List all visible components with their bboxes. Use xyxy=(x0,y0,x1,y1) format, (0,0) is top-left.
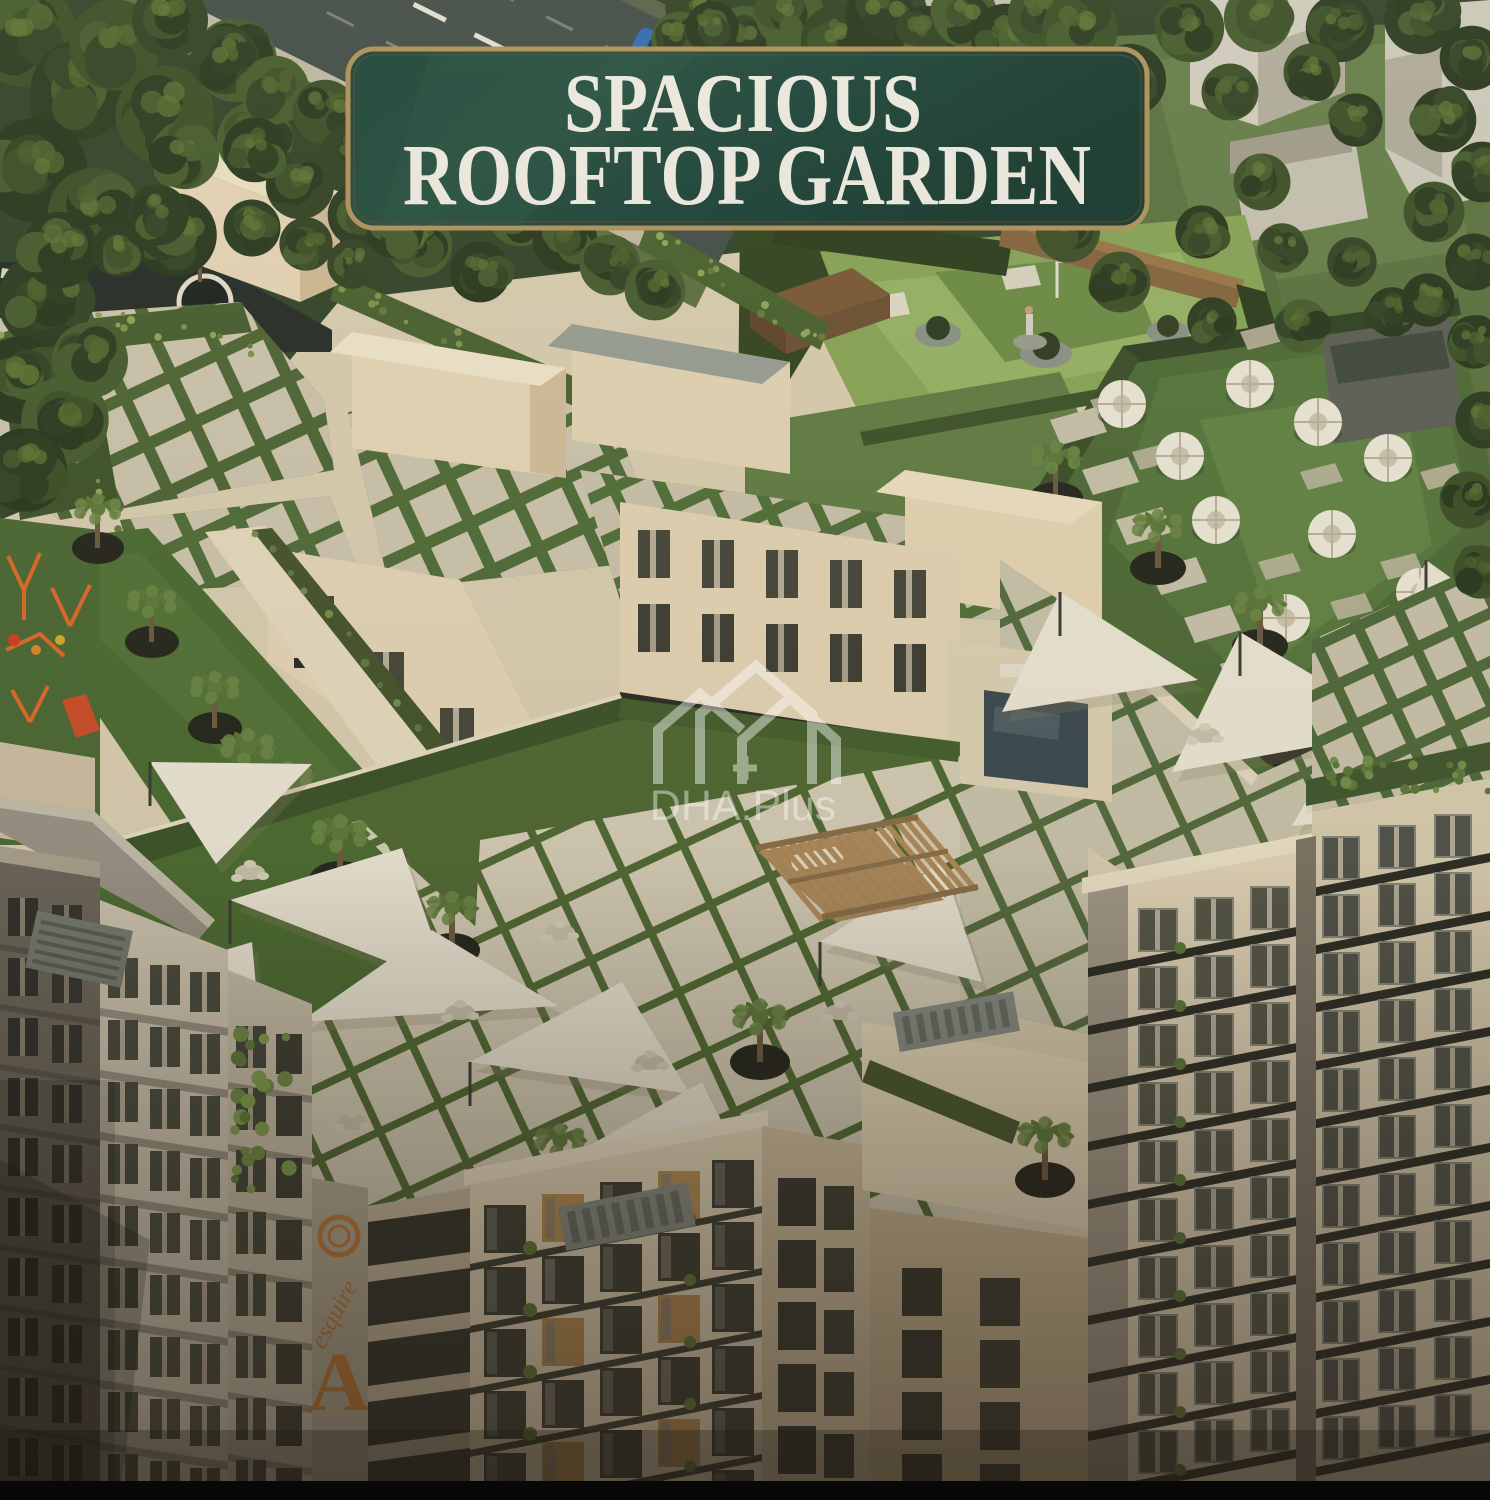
svg-text:DHA.Plus: DHA.Plus xyxy=(650,782,836,830)
